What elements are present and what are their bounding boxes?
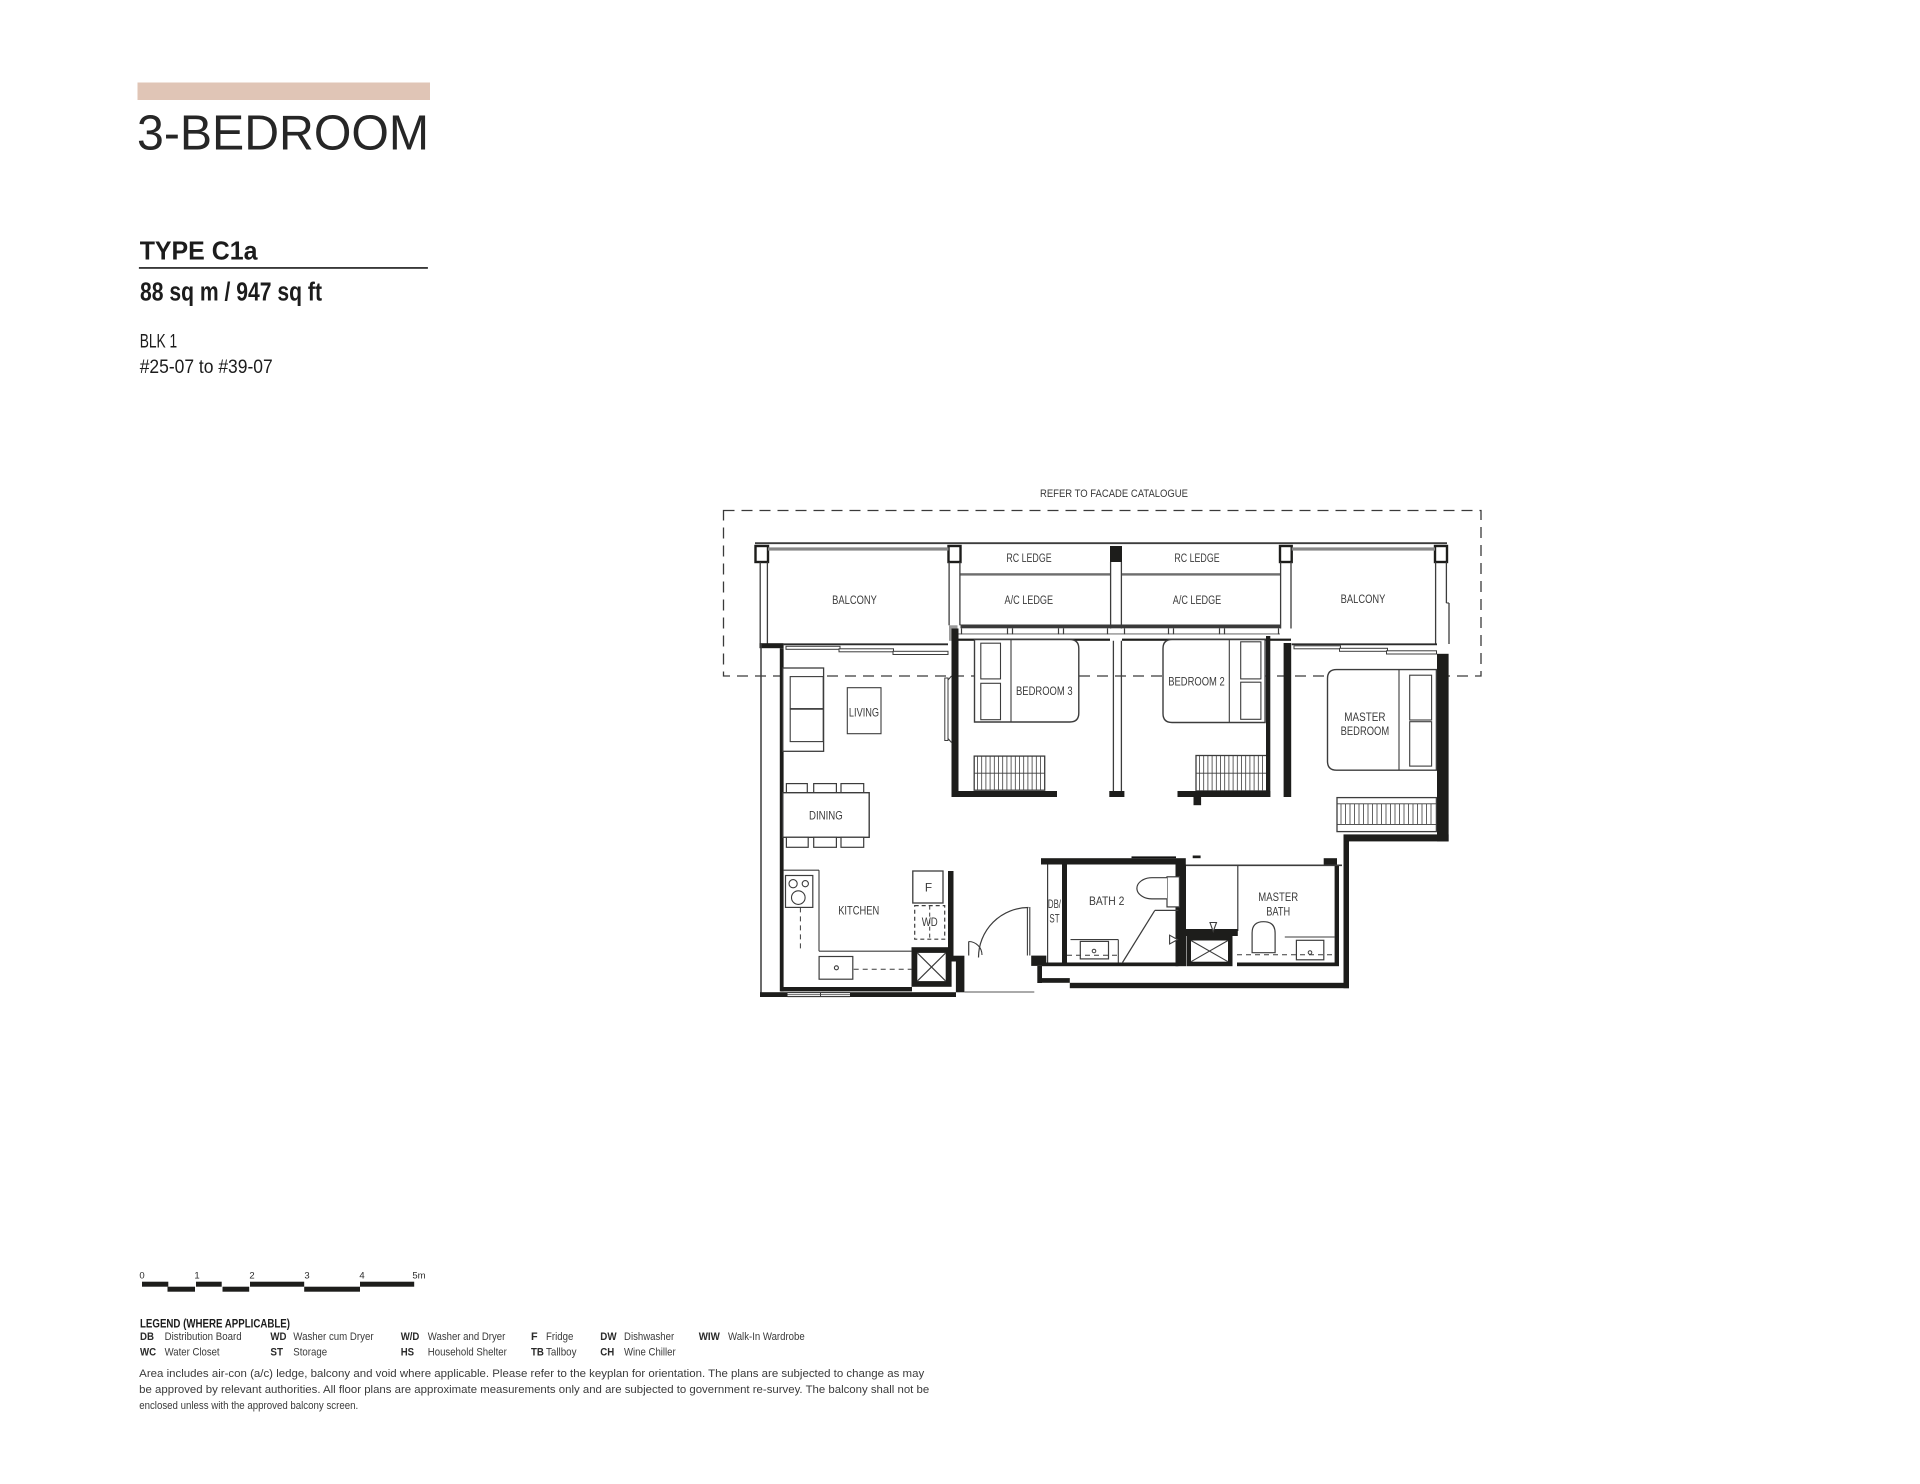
svg-text:Washer and Dryer: Washer and Dryer [428, 1331, 506, 1343]
svg-text:Fridge: Fridge [546, 1331, 573, 1343]
svg-text:BALCONY: BALCONY [1341, 594, 1386, 606]
svg-text:REFER TO FACADE CATALOGUE: REFER TO FACADE CATALOGUE [1040, 488, 1188, 500]
svg-text:WD: WD [270, 1331, 286, 1343]
svg-text:BLK 1: BLK 1 [140, 330, 178, 352]
svg-text:CH: CH [600, 1347, 614, 1359]
svg-text:DW: DW [600, 1331, 617, 1343]
svg-text:WC: WC [140, 1347, 156, 1359]
svg-text:#25-07 to #39-07: #25-07 to #39-07 [140, 356, 273, 378]
svg-text:WD: WD [922, 915, 938, 929]
svg-text:ST: ST [270, 1347, 283, 1359]
svg-text:BEDROOM 2: BEDROOM 2 [1168, 675, 1225, 689]
svg-text:Wine Chiller: Wine Chiller [624, 1347, 676, 1359]
svg-text:RC LEDGE: RC LEDGE [1174, 553, 1219, 565]
svg-text:A/C LEDGE: A/C LEDGE [1173, 595, 1222, 607]
svg-text:ST: ST [1049, 913, 1059, 926]
svg-text:Walk-In Wardrobe: Walk-In Wardrobe [728, 1331, 805, 1343]
svg-text:RC LEDGE: RC LEDGE [1006, 553, 1051, 565]
svg-text:F: F [531, 1331, 538, 1343]
svg-text:3: 3 [304, 1270, 309, 1281]
svg-text:A/C LEDGE: A/C LEDGE [1005, 595, 1054, 607]
svg-text:MASTER: MASTER [1258, 890, 1298, 904]
svg-text:0: 0 [139, 1270, 144, 1281]
svg-text:DB/: DB/ [1048, 898, 1062, 911]
svg-text:3-BEDROOM: 3-BEDROOM [137, 106, 429, 161]
svg-text:F: F [925, 881, 932, 895]
svg-text:5m: 5m [412, 1270, 425, 1281]
svg-text:Household Shelter: Household Shelter [428, 1347, 507, 1359]
svg-text:TYPE C1a: TYPE C1a [140, 236, 258, 266]
svg-text:DB: DB [140, 1331, 154, 1343]
svg-text:DINING: DINING [809, 809, 843, 823]
svg-text:BATH: BATH [1266, 904, 1290, 918]
svg-text:Washer cum Dryer: Washer cum Dryer [293, 1331, 374, 1343]
svg-text:LIVING: LIVING [849, 706, 879, 720]
svg-text:be approved by relevant author: be approved by relevant authorities. All… [139, 1384, 929, 1396]
svg-text:BATH 2: BATH 2 [1089, 894, 1125, 908]
svg-text:4: 4 [359, 1270, 364, 1281]
svg-text:Distribution Board: Distribution Board [165, 1331, 242, 1343]
svg-text:MASTER: MASTER [1344, 710, 1385, 724]
svg-text:WIW: WIW [699, 1331, 721, 1343]
svg-text:BALCONY: BALCONY [832, 595, 877, 607]
svg-text:Dishwasher: Dishwasher [624, 1331, 675, 1343]
svg-text:TB: TB [531, 1347, 544, 1359]
svg-text:Storage: Storage [293, 1347, 327, 1359]
svg-text:LEGEND (WHERE APPLICABLE): LEGEND (WHERE APPLICABLE) [140, 1318, 290, 1331]
svg-text:enclosed unless with the appro: enclosed unless with the approved balcon… [139, 1400, 358, 1412]
svg-text:W/D: W/D [401, 1331, 420, 1343]
svg-text:Area includes air-con (a/c) le: Area includes air-con (a/c) ledge, balco… [139, 1368, 924, 1380]
svg-text:Water Closet: Water Closet [165, 1347, 220, 1359]
svg-text:Tallboy: Tallboy [546, 1347, 577, 1359]
svg-text:HS: HS [401, 1347, 414, 1359]
svg-text:BEDROOM 3: BEDROOM 3 [1016, 684, 1073, 698]
svg-text:88 sq m / 947 sq ft: 88 sq m / 947 sq ft [140, 279, 322, 307]
svg-text:BEDROOM: BEDROOM [1341, 724, 1390, 738]
svg-text:2: 2 [249, 1270, 254, 1281]
svg-text:KITCHEN: KITCHEN [838, 904, 879, 918]
svg-text:1: 1 [194, 1270, 199, 1281]
